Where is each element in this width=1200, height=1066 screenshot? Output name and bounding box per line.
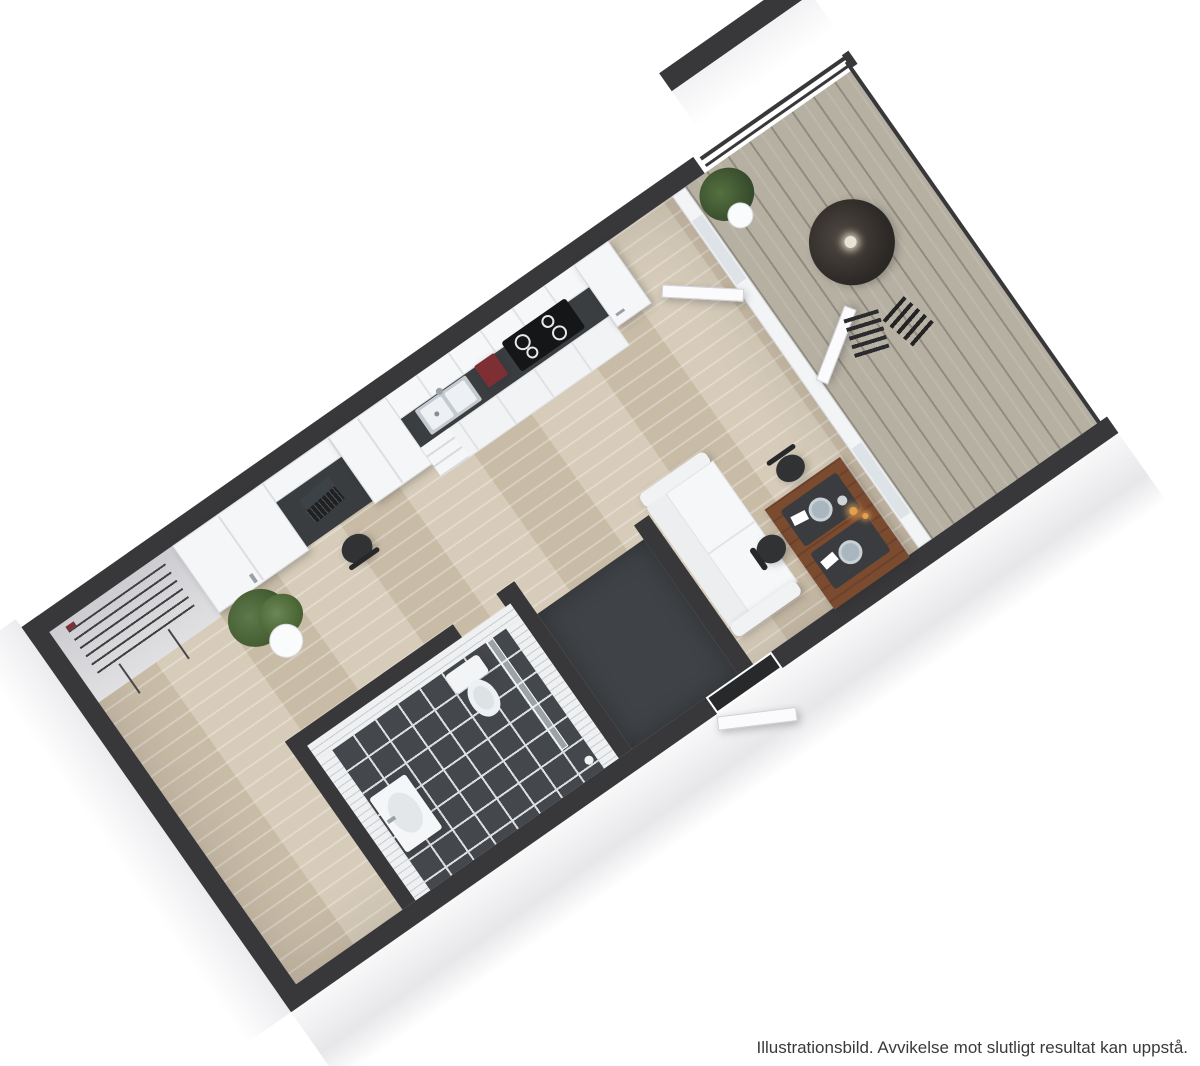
floorplan-illustration: { "caption": { "text": "Illustrationsbil… (0, 0, 1200, 1066)
apartment-scene (22, 48, 1119, 1012)
disclaimer-caption: Illustrationsbild. Avvikelse mot slutlig… (756, 1038, 1188, 1058)
